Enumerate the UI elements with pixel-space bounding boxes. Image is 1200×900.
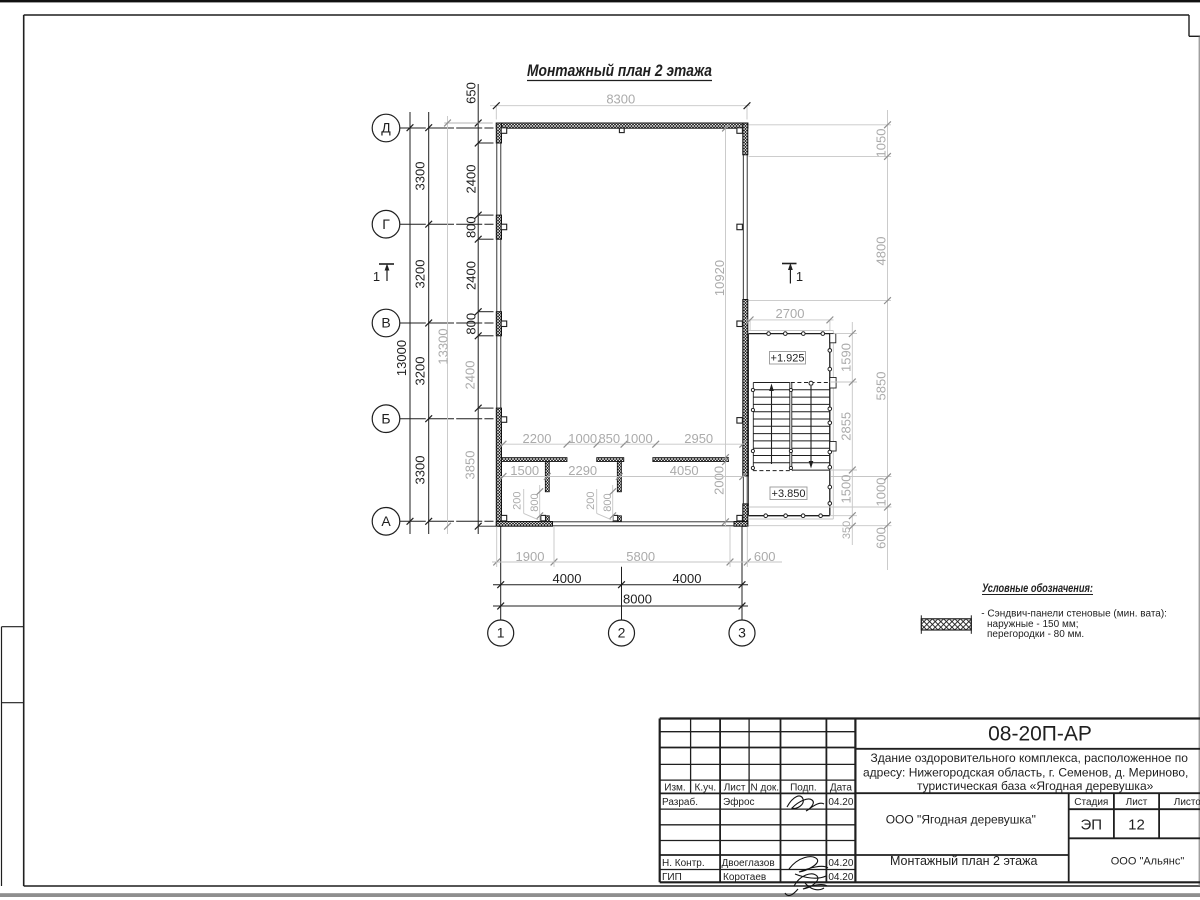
svg-text:2700: 2700 [776, 306, 805, 321]
svg-text:ООО "Ягодная деревушка": ООО "Ягодная деревушка" [886, 812, 1036, 826]
svg-text:1050: 1050 [873, 129, 888, 158]
svg-text:5850: 5850 [873, 372, 888, 401]
svg-text:3200: 3200 [412, 357, 427, 386]
svg-text:Дата: Дата [830, 782, 853, 793]
svg-text:Эфрос: Эфрос [723, 796, 755, 808]
svg-text:2290: 2290 [568, 463, 597, 478]
svg-text:ГИП: ГИП [662, 872, 682, 883]
svg-text:800: 800 [602, 493, 614, 511]
svg-text:2400: 2400 [463, 165, 478, 194]
svg-text:200: 200 [511, 492, 523, 510]
svg-text:800: 800 [463, 216, 478, 238]
svg-text:+1.925: +1.925 [771, 352, 805, 364]
svg-text:1: 1 [497, 625, 505, 641]
svg-text:1: 1 [373, 269, 380, 284]
svg-text:850: 850 [598, 431, 620, 446]
svg-text:200: 200 [585, 492, 597, 510]
svg-text:650: 650 [463, 82, 478, 104]
svg-text:1900: 1900 [516, 549, 545, 564]
svg-text:04.20: 04.20 [828, 797, 853, 808]
svg-text:Монтажный план 2 этажа: Монтажный план 2 этажа [527, 62, 712, 80]
svg-text:2000: 2000 [711, 466, 726, 495]
svg-text:3300: 3300 [412, 456, 427, 485]
svg-text:В: В [381, 315, 390, 331]
svg-text:600: 600 [754, 549, 776, 564]
svg-text:1500: 1500 [838, 475, 853, 504]
svg-text:Г: Г [382, 216, 390, 232]
svg-text:2200: 2200 [523, 431, 552, 446]
svg-text:Стадия: Стадия [1074, 797, 1108, 808]
svg-text:8000: 8000 [623, 591, 652, 606]
svg-text:туристическая база «Ягодная де: туристическая база «Ягодная деревушка» [917, 779, 1154, 793]
svg-text:13300: 13300 [435, 328, 450, 364]
svg-text:4050: 4050 [670, 463, 699, 478]
svg-text:Подп.: Подп. [790, 782, 817, 793]
svg-text:13000: 13000 [394, 340, 409, 376]
svg-text:Б: Б [381, 410, 390, 426]
svg-text:Лист: Лист [724, 782, 746, 793]
svg-text:2400: 2400 [463, 261, 478, 290]
svg-text:N док.: N док. [751, 782, 780, 793]
svg-text:Разраб.: Разраб. [662, 796, 698, 808]
svg-text:3200: 3200 [412, 260, 427, 289]
svg-text:3850: 3850 [463, 451, 478, 480]
svg-text:2950: 2950 [684, 431, 713, 446]
svg-text:4000: 4000 [673, 571, 702, 586]
svg-text:К.уч.: К.уч. [695, 782, 717, 793]
svg-text:600: 600 [873, 527, 888, 549]
svg-text:Изм.: Изм. [664, 782, 685, 793]
svg-text:04.20: 04.20 [828, 858, 853, 869]
svg-text:ЭП: ЭП [1081, 817, 1103, 834]
svg-text:08-20П-АР: 08-20П-АР [988, 723, 1092, 746]
svg-text:3300: 3300 [412, 162, 427, 191]
svg-text:2855: 2855 [838, 412, 853, 441]
svg-text:2400: 2400 [463, 361, 478, 390]
svg-text:Коротаев: Коротаев [723, 872, 766, 883]
svg-text:3: 3 [738, 625, 746, 641]
svg-text:Н. Контр.: Н. Контр. [662, 858, 705, 869]
svg-text:8300: 8300 [606, 91, 635, 106]
svg-text:Двоеглазов: Двоеглазов [722, 858, 775, 869]
svg-text:1500: 1500 [510, 463, 539, 478]
svg-text:Условные обозначения:: Условные обозначения: [982, 583, 1093, 595]
svg-text:Монтажный план 2 этажа: Монтажный план 2 этажа [890, 854, 1037, 868]
svg-text:10920: 10920 [712, 260, 727, 296]
svg-text:ООО "Альянс": ООО "Альянс" [1111, 855, 1185, 867]
svg-text:4800: 4800 [873, 237, 888, 266]
svg-text:Здание оздоровительного компле: Здание оздоровительного комплекса, распо… [871, 751, 1189, 765]
svg-text:800: 800 [529, 493, 541, 511]
svg-text:4000: 4000 [553, 571, 582, 586]
svg-text:адресу: Нижегородская область,: адресу: Нижегородская область, г. Семено… [863, 766, 1188, 780]
svg-text:+3.850: +3.850 [772, 488, 806, 500]
svg-text:Листов: Листов [1174, 797, 1200, 808]
svg-text:350: 350 [841, 521, 853, 539]
svg-text:1000: 1000 [624, 431, 653, 446]
svg-text:5800: 5800 [626, 549, 655, 564]
svg-text:А: А [381, 513, 391, 529]
svg-text:04.20: 04.20 [828, 872, 853, 883]
svg-text:1000: 1000 [568, 431, 597, 446]
svg-text:800: 800 [463, 313, 478, 335]
svg-text:1: 1 [796, 269, 803, 284]
svg-text:1000: 1000 [873, 478, 888, 507]
svg-text:перегородки - 80 мм.: перегородки - 80 мм. [987, 629, 1084, 640]
svg-text:12: 12 [1128, 817, 1145, 834]
svg-text:1590: 1590 [838, 343, 853, 372]
svg-text:Лист: Лист [1126, 797, 1148, 808]
svg-text:2: 2 [618, 625, 626, 641]
svg-text:Д: Д [381, 120, 391, 136]
